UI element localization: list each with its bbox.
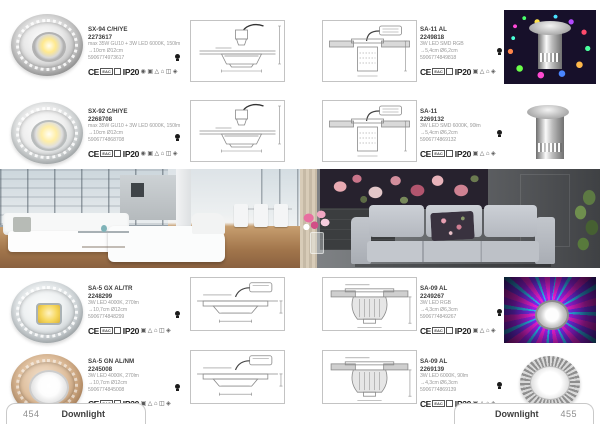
floral-mural [320,169,488,209]
ce-mark-icon: CE [420,149,431,159]
product-name: SA-09 AL [420,285,506,293]
eac-mark-icon: EAC [100,150,112,157]
product-info: SA-5 GX AL/TR 2248299 3W LED 4000K, 270l… [88,285,188,336]
f-mark-icon: ▣ [473,151,479,157]
transformer-icon: ◫ [166,151,172,157]
bulb-icon [497,48,502,53]
product-dimensions: →10,7cm Ø12cm [88,380,188,387]
product-row: SX-94 C/H/YE 2273617 max 35W GU10 + 3W L… [0,8,600,94]
wall-light-photo [538,29,562,69]
led-module-icon: ◈ [166,401,171,407]
class2-insulation-icon [114,327,121,334]
transformer-icon: ◫ [159,328,165,334]
technical-drawing [322,277,417,331]
transformer-icon: ◫ [166,69,172,75]
ce-mark-icon: CE [420,326,431,336]
bulb-icon [175,134,180,139]
ce-mark-icon: CE [88,67,99,77]
product-ean: 5906774973617 [88,55,188,62]
kitchen [120,175,180,221]
indoor-use-icon: ⌂ [486,69,490,75]
living-room-photo [0,169,300,268]
certification-row: CE EAC IP20 ◉ ▣ △ ⌂ ◫ ◈ [88,67,188,77]
product-code: 2269139 [420,366,506,374]
product-code: 2273617 [88,34,188,42]
warning-triangle-icon: △ [154,151,159,157]
ip20-rating: IP20 [455,67,471,77]
product-spec: max 35W GU10 + 3W LED 6000K, 150lm [88,41,188,48]
gray-sofa-photo [300,169,600,268]
eac-mark-icon: EAC [100,68,112,75]
page-number: 455 [560,409,577,419]
product-dimensions: →4,3cm Ø6,3cm [420,307,506,314]
product-row: SX-92 C/H/YE 2268708 max 35W GU10 + 3W L… [0,94,600,180]
ce-mark-icon: CE [88,326,99,336]
column [176,169,191,231]
f-mark-icon: ▣ [147,69,153,75]
product-dimensions: →10,7cm Ø12cm [88,307,188,314]
led-module-icon: ◈ [491,69,496,75]
technical-drawing [190,100,285,162]
led-module-icon: ◈ [491,151,496,157]
downlight-photo [11,14,83,76]
eac-mark-icon: EAC [432,68,444,75]
product-dimensions: →5,4cm Ø6,2cm [420,48,506,55]
plant [573,187,600,262]
product-photo [504,10,596,84]
eac-mark-icon: EAC [432,400,444,407]
warning-triangle-icon: △ [154,69,159,75]
led-module-icon: ◈ [166,328,171,334]
certification-row: CE EAC IP20 ▣ △ ⌂ ◈ [420,149,506,159]
downlight-photo [11,281,83,343]
rohs-icon: ◉ [141,151,146,157]
indoor-use-icon: ⌂ [486,328,490,334]
technical-drawing [190,350,285,404]
floral-cushion [430,211,474,241]
ce-mark-icon: CE [420,399,431,409]
technical-drawing [322,100,417,162]
eac-mark-icon: EAC [100,327,112,334]
warning-triangle-icon: △ [148,401,153,407]
product-ean: 5906774849267 [420,314,506,321]
warning-triangle-icon: △ [148,328,153,334]
product-code: 2269132 [420,116,506,124]
rohs-icon: ◉ [141,69,146,75]
product-info: SA-09 AL 2249267 3W LED RGB →4,3cm Ø6,3c… [420,285,506,336]
downlight-photo [11,102,83,164]
section-label: Downlight [495,409,539,419]
product-ean: 5906774869132 [420,137,506,144]
transformer-icon: ◫ [159,401,165,407]
product-name: SX-94 C/H/YE [88,26,188,34]
indoor-use-icon: ⌂ [154,328,158,334]
product-info: SA-09 AL 2269139 3W LED 6000K, 90lm →4,3… [420,358,506,409]
bulb-icon [175,384,180,389]
coffee-table [78,231,129,246]
product-name: SA-09 AL [420,358,506,366]
page-number: 454 [23,409,40,419]
rgb-effect-photo [504,10,596,84]
product-code: 2249818 [420,34,506,42]
ce-mark-icon: CE [420,67,431,77]
right-page-footer: Downlight 455 [454,403,594,424]
certification-row: CE EAC IP20 ▣ △ ⌂ ◈ [420,326,506,336]
product-dimensions: →5,4cm Ø6,2cm [420,130,506,137]
product-code: 2248299 [88,293,188,301]
led-module-icon: ◈ [491,328,496,334]
ce-mark-icon: CE [88,149,99,159]
product-photo [6,277,88,349]
product-dimensions: →10cm Ø12cm [88,130,188,137]
product-info: SX-94 C/H/YE 2273617 max 35W GU10 + 3W L… [88,26,188,77]
product-code: 2268708 [88,116,188,124]
product-photo [6,98,88,170]
product-photo [504,98,596,172]
indoor-use-icon: ⌂ [161,151,165,157]
eac-mark-icon: EAC [432,150,444,157]
product-photo [504,277,596,343]
gray-sofa [351,205,555,266]
eac-mark-icon: EAC [432,327,444,334]
certification-row: CE EAC IP20 ▣ △ ⌂ ◈ [420,67,506,77]
downlight-photo [535,300,569,330]
class2-insulation-icon [446,327,453,334]
product-info: SA-11 AL 2249818 3W LED SMD RGB →5,4cm Ø… [420,26,506,77]
technical-drawing [322,350,417,404]
led-module-icon: ◈ [173,151,178,157]
lifestyle-photos [0,169,600,268]
product-ean: 5906774849818 [420,55,506,62]
class2-insulation-icon [114,150,121,157]
product-code: 2249267 [420,293,506,301]
indoor-use-icon: ⌂ [161,69,165,75]
wall-light-photo [504,98,596,172]
aluminium-cylinder [536,113,564,159]
product-dimensions: →10cm Ø12cm [88,48,188,55]
product-dimensions: →4,3cm Ø6,3cm [420,380,506,387]
product-code: 2245008 [88,366,188,374]
rgb-effect-photo [504,277,596,343]
product-ean: 5906774868708 [88,137,188,144]
class2-insulation-icon [446,150,453,157]
bulb-icon [175,311,180,316]
product-row: SA-5 GX AL/TR 2248299 3W LED 4000K, 270l… [0,275,600,347]
technical-drawing [322,20,417,82]
product-photo [6,10,88,82]
product-ean: 5906774869139 [420,387,506,394]
product-name: SA-5 GX AL/TR [88,285,188,293]
technical-drawing [190,277,285,331]
product-info: SX-92 C/H/YE 2268708 max 35W GU10 + 3W L… [88,108,188,159]
bulb-icon [497,309,502,314]
bulb-icon [497,382,502,387]
warning-triangle-icon: △ [480,328,485,334]
product-info: SA-11 2269132 3W LED SMD 6000K, 90lm →5,… [420,108,506,159]
bulb-icon [497,130,502,135]
certification-row: CE EAC IP20 ◉ ▣ △ ⌂ ◫ ◈ [88,149,188,159]
f-mark-icon: ▣ [141,328,147,334]
product-name: SA-5 GN AL/NM [88,358,188,366]
indoor-use-icon: ⌂ [486,151,490,157]
class2-insulation-icon [446,400,453,407]
product-ean: 5906774848299 [88,314,188,321]
ip20-rating: IP20 [123,67,139,77]
ip20-rating: IP20 [123,326,139,336]
product-ean: 5906774845008 [88,387,188,394]
product-info: SA-5 GN AL/NM 2245008 3W LED 4000K, 270l… [88,358,188,409]
f-mark-icon: ▣ [473,69,479,75]
dining-set [234,195,297,228]
technical-drawing [190,20,285,82]
ip20-rating: IP20 [123,149,139,159]
warning-triangle-icon: △ [480,151,485,157]
ip20-rating: IP20 [455,326,471,336]
bulb-icon [175,54,180,59]
flower-vase [300,209,336,255]
indoor-use-icon: ⌂ [154,401,158,407]
product-spec: max 35W GU10 + 3W LED 6000K, 150lm [88,123,188,130]
ip20-rating: IP20 [455,149,471,159]
led-module-icon: ◈ [173,69,178,75]
f-mark-icon: ▣ [147,151,153,157]
product-name: SX-92 C/H/YE [88,108,188,116]
warning-triangle-icon: △ [480,69,485,75]
product-name: SA-11 [420,108,506,116]
product-name: SA-11 AL [420,26,506,34]
f-mark-icon: ▣ [473,328,479,334]
class2-insulation-icon [114,68,121,75]
left-page-footer: 454 Downlight [6,403,146,424]
section-label: Downlight [62,409,106,419]
class2-insulation-icon [446,68,453,75]
certification-row: CE EAC IP20 ▣ △ ⌂ ◫ ◈ [88,326,188,336]
